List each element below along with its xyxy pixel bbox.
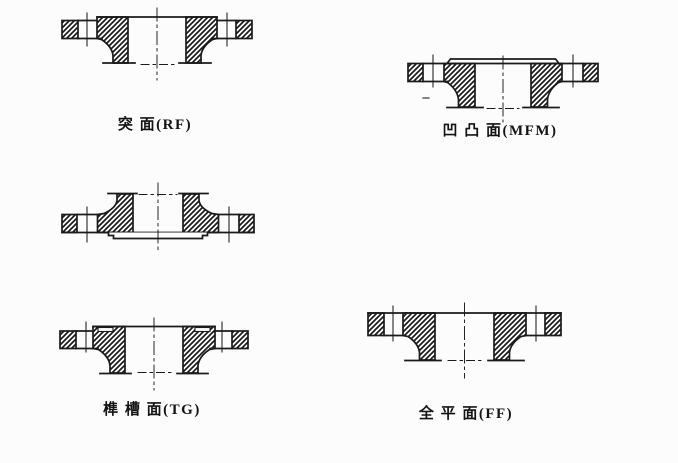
left-rim-section <box>408 64 423 82</box>
right-rim-section <box>232 331 248 349</box>
left-hub-section <box>97 17 128 63</box>
left-rim-section <box>62 21 78 39</box>
left-rim-section <box>368 313 384 336</box>
tg-flange-section-drawing <box>48 314 263 396</box>
left-rim-section <box>62 215 77 233</box>
centerlines <box>448 303 481 378</box>
left-groove-slot <box>98 328 113 332</box>
centerlines <box>141 8 177 80</box>
right-groove-slot <box>195 328 210 332</box>
tongue-flange-section-drawing <box>55 178 265 256</box>
ff-flange-section-drawing <box>358 295 570 385</box>
left-rim-section <box>60 331 76 349</box>
centerlines <box>487 56 519 122</box>
left-hub-section <box>403 313 435 360</box>
mfm-flange-section-drawing <box>398 48 605 128</box>
right-rim-section <box>236 21 252 39</box>
left-hub-section <box>93 327 125 374</box>
right-hub-section <box>183 194 219 233</box>
mfm-label: 凹 凸 面(MFM) <box>405 119 595 140</box>
rf-flange-section-drawing <box>50 3 265 123</box>
ff-label: 全 平 面(FF) <box>371 402 561 423</box>
right-hub-section <box>531 64 562 108</box>
centerlines <box>139 183 177 252</box>
right-rim-section <box>583 64 598 82</box>
right-hub-section <box>186 17 217 63</box>
left-hub-section <box>98 194 134 233</box>
tg-label: 榫 槽 面(TG) <box>57 398 247 419</box>
rf-label: 突 面(RF) <box>60 113 250 134</box>
centerlines <box>138 318 172 390</box>
right-hub-section <box>183 327 215 374</box>
right-hub-section <box>494 313 526 360</box>
scanned-diagram-page: 突 面(RF) 凹 凸 面(MFM) <box>0 0 678 463</box>
left-hub-section <box>444 64 475 108</box>
right-rim-section <box>545 313 561 336</box>
right-rim-section <box>239 215 254 233</box>
